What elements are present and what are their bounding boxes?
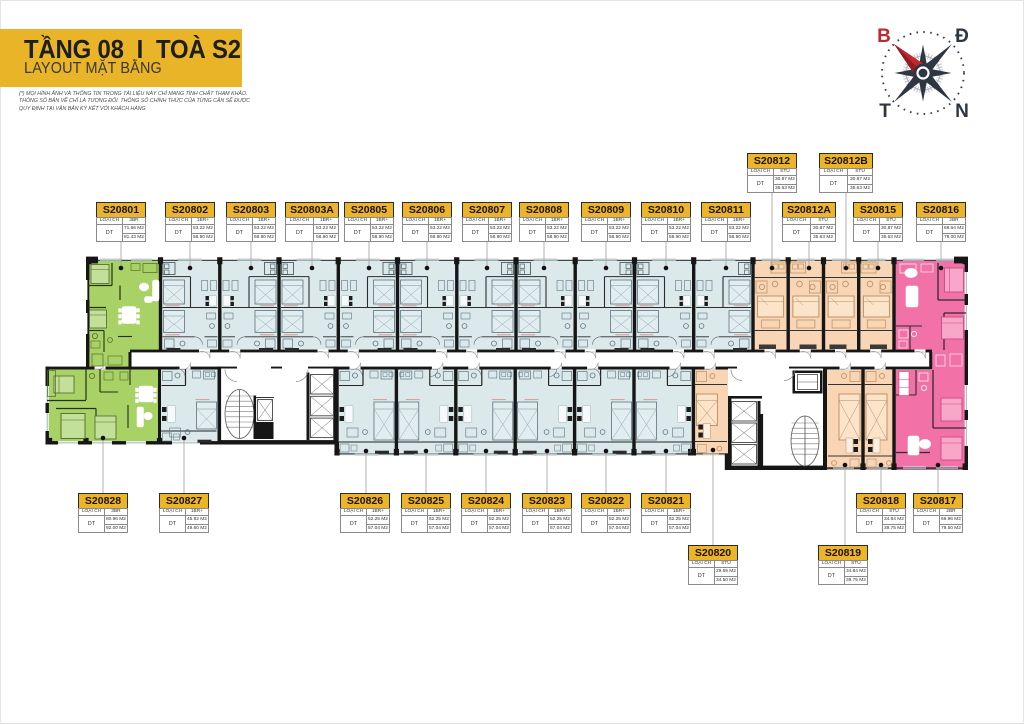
svg-text:T: T [879,101,891,122]
svg-text:N: N [955,101,969,122]
svg-text:Đ: Đ [955,26,969,47]
svg-text:B: B [877,26,891,47]
